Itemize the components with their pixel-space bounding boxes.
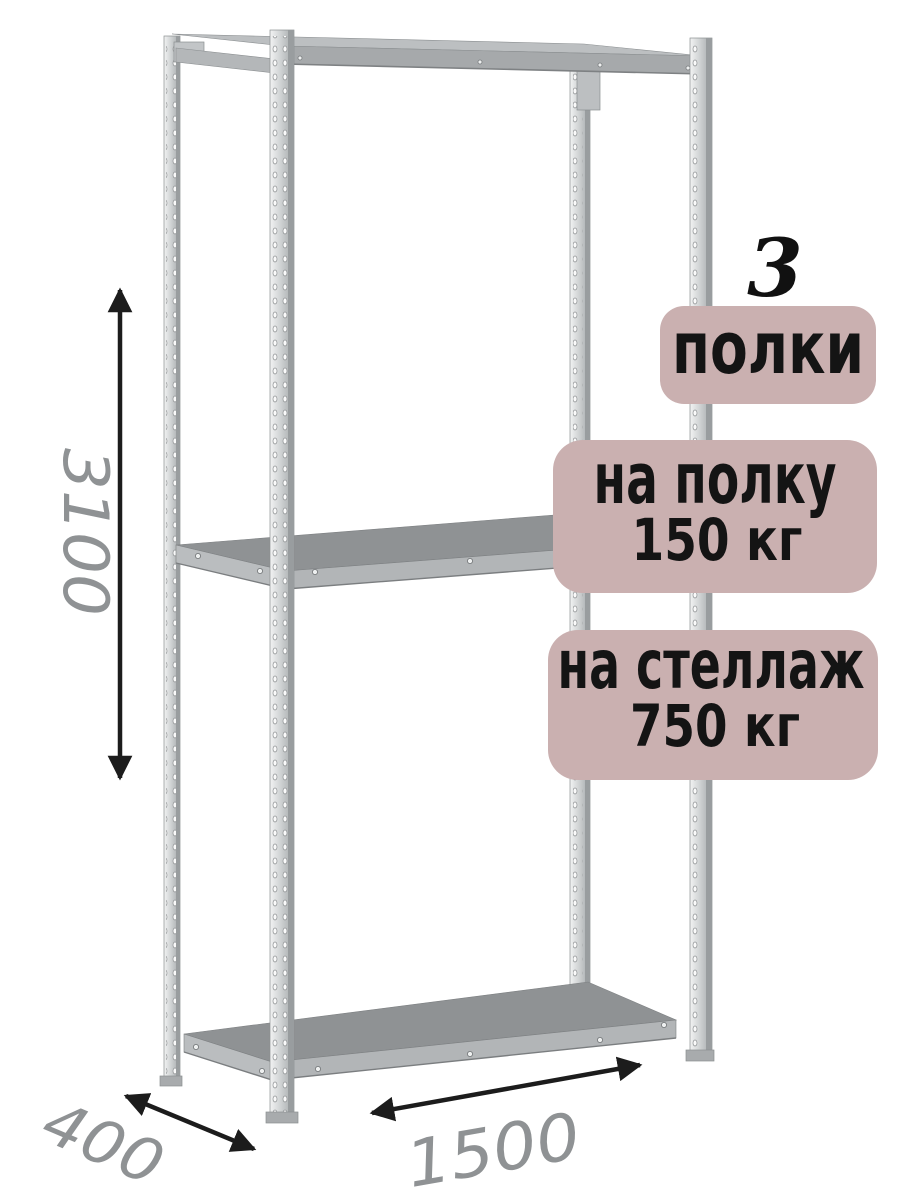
depth-dimension-label: 400 [32, 1087, 173, 1200]
product-image: 3100 1500 400 3 полки на полку 150 кг на… [0, 0, 900, 1200]
height-dimension: 3100 [49, 290, 122, 778]
post-foot [160, 1076, 182, 1086]
shelf-count-label: 3 [747, 221, 803, 315]
height-dimension-label: 3100 [49, 448, 122, 616]
shelves-badge-label: полки [672, 306, 864, 390]
per-rack-load-badge: на стеллаж 750 кг [548, 626, 878, 780]
per-shelf-load-line2: 150 кг [632, 506, 803, 574]
rack-post-front-left [266, 30, 298, 1123]
per-rack-load-line2: 750 кг [630, 692, 800, 760]
width-dimension: 1500 [372, 1065, 640, 1200]
shelves-badge: полки [660, 306, 876, 404]
depth-dimension: 400 [32, 1087, 254, 1200]
shelving-rack-illustration: 3100 1500 400 3 полки на полку 150 кг на… [0, 0, 900, 1200]
top-side-stringer [176, 48, 284, 74]
per-shelf-load-badge: на полку 150 кг [553, 438, 877, 593]
width-dimension-label: 1500 [401, 1100, 586, 1200]
width-arrow-icon [372, 1065, 640, 1113]
post-foot [266, 1112, 298, 1123]
bottom-shelf [184, 982, 676, 1080]
post-foot [686, 1050, 714, 1061]
top-shelf [172, 34, 703, 74]
